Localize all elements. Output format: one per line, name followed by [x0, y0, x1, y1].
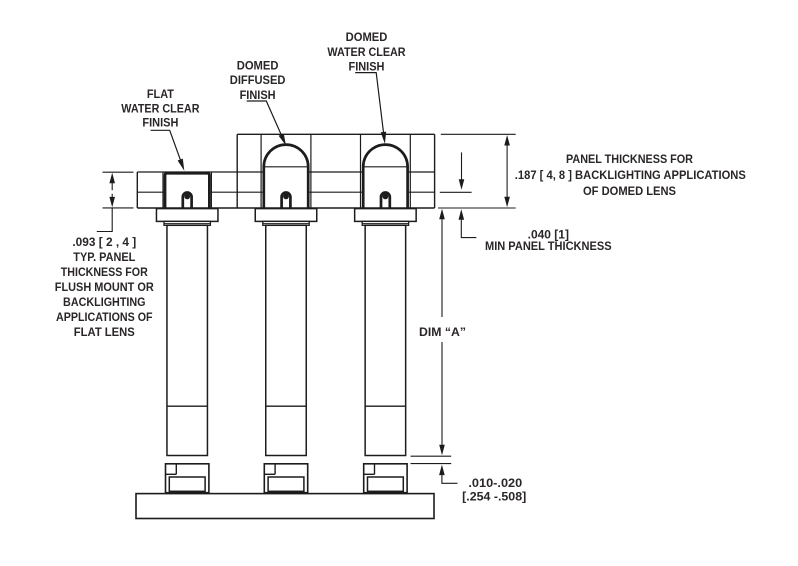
- svg-text:[.254 -.508]: [.254 -.508]: [462, 489, 526, 503]
- svg-text:DIFFUSED: DIFFUSED: [230, 73, 286, 87]
- svg-text:.010-.020: .010-.020: [468, 476, 522, 490]
- svg-text:FLAT LENS: FLAT LENS: [74, 325, 135, 339]
- svg-text:PANEL THICKNESS FOR: PANEL THICKNESS FOR: [566, 152, 693, 166]
- svg-text:WATER CLEAR: WATER CLEAR: [121, 101, 199, 115]
- svg-text:FINISH: FINISH: [349, 60, 385, 74]
- svg-text:.187 [ 4, 8 ] BACKLIGHTING APP: .187 [ 4, 8 ] BACKLIGHTING APPLICATIONS: [515, 168, 746, 182]
- svg-text:DOMED: DOMED: [346, 30, 388, 44]
- svg-text:FLUSH MOUNT OR: FLUSH MOUNT OR: [55, 280, 154, 294]
- svg-text:FINISH: FINISH: [240, 88, 276, 102]
- svg-text:APPLICATIONS OF: APPLICATIONS OF: [56, 310, 153, 324]
- svg-text:.093 [ 2 , 4 ]: .093 [ 2 , 4 ]: [72, 235, 136, 249]
- svg-text:MIN PANEL THICKNESS: MIN PANEL THICKNESS: [485, 239, 612, 253]
- svg-text:DOMED: DOMED: [237, 58, 279, 72]
- svg-text:DIM “A”: DIM “A”: [419, 325, 466, 339]
- svg-text:WATER CLEAR: WATER CLEAR: [327, 45, 405, 59]
- svg-text:BACKLIGHTING: BACKLIGHTING: [63, 295, 146, 309]
- svg-text:OF DOMED LENS: OF DOMED LENS: [583, 184, 676, 198]
- svg-text:FLAT: FLAT: [147, 87, 174, 101]
- svg-text:TYP. PANEL: TYP. PANEL: [73, 250, 135, 264]
- svg-text:FINISH: FINISH: [142, 116, 178, 130]
- svg-text:THICKNESS FOR: THICKNESS FOR: [61, 265, 148, 279]
